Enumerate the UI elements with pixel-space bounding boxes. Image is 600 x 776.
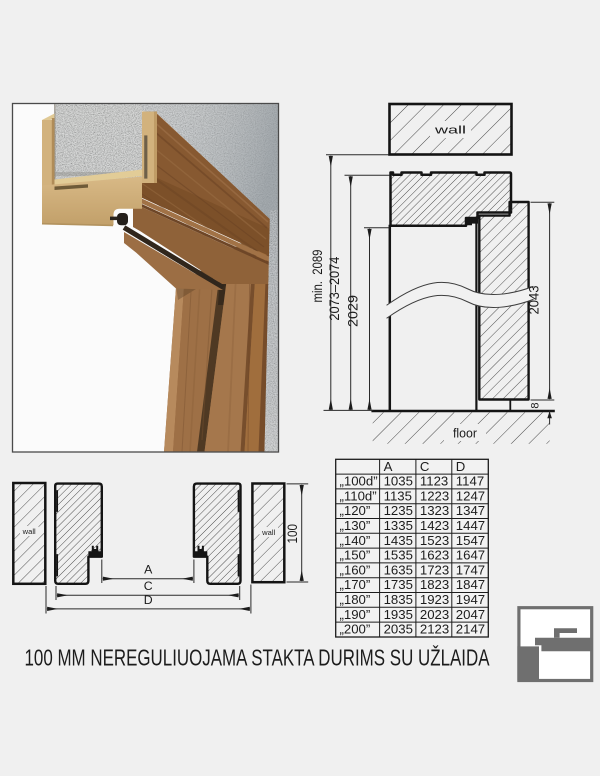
svg-text:2035: 2035 xyxy=(384,622,413,637)
svg-text:„100d”: „100d” xyxy=(340,474,378,489)
svg-text:1323: 1323 xyxy=(420,503,449,518)
svg-text:„140”: „140” xyxy=(340,533,371,548)
svg-text:„120”: „120” xyxy=(340,503,371,518)
svg-text:D: D xyxy=(144,593,153,607)
svg-text:2147: 2147 xyxy=(456,622,485,637)
svg-text:1135: 1135 xyxy=(384,488,412,503)
svg-text:„190”: „190” xyxy=(340,607,371,622)
svg-text:2073–2074: 2073–2074 xyxy=(326,256,342,320)
svg-text:1723: 1723 xyxy=(420,562,449,577)
svg-text:1923: 1923 xyxy=(420,592,449,607)
svg-text:1547: 1547 xyxy=(456,533,485,548)
svg-text:D: D xyxy=(456,459,466,474)
svg-text:„160”: „160” xyxy=(340,562,371,577)
svg-text:1523: 1523 xyxy=(420,533,449,548)
svg-text:1847: 1847 xyxy=(456,577,485,592)
svg-text:2047: 2047 xyxy=(456,607,485,622)
svg-text:100 MM NEREGULIUOJAMA STAKTA D: 100 MM NEREGULIUOJAMA STAKTA DURIMS SU U… xyxy=(25,645,490,671)
svg-text:1123: 1123 xyxy=(420,474,448,489)
svg-text:1035: 1035 xyxy=(384,474,413,489)
svg-text:1635: 1635 xyxy=(384,562,413,577)
svg-text:„110d”: „110d” xyxy=(340,488,377,503)
svg-text:C: C xyxy=(420,459,430,474)
svg-text:2123: 2123 xyxy=(420,622,449,637)
svg-text:2029: 2029 xyxy=(344,295,360,327)
svg-text:„150”: „150” xyxy=(340,548,371,563)
svg-text:1623: 1623 xyxy=(420,548,449,563)
svg-text:1147: 1147 xyxy=(456,474,484,489)
svg-text:wall: wall xyxy=(22,527,36,536)
svg-text:1335: 1335 xyxy=(384,518,413,533)
svg-text:1447: 1447 xyxy=(456,518,485,533)
svg-text:1235: 1235 xyxy=(384,503,413,518)
svg-text:1423: 1423 xyxy=(420,518,449,533)
svg-text:1935: 1935 xyxy=(384,607,413,622)
svg-text:wall: wall xyxy=(261,528,275,537)
svg-text:2023: 2023 xyxy=(420,607,449,622)
svg-text:„170”: „170” xyxy=(340,577,371,592)
svg-text:„180”: „180” xyxy=(340,592,371,607)
svg-text:1823: 1823 xyxy=(420,577,449,592)
svg-text:1347: 1347 xyxy=(456,503,485,518)
svg-text:1947: 1947 xyxy=(456,592,485,607)
svg-text:1435: 1435 xyxy=(384,533,413,548)
svg-text:1647: 1647 xyxy=(456,548,485,563)
svg-text:„200”: „200” xyxy=(340,622,371,637)
svg-text:floor: floor xyxy=(453,427,477,441)
svg-text:wall: wall xyxy=(433,125,466,137)
svg-text:100: 100 xyxy=(285,524,300,544)
svg-text:1223: 1223 xyxy=(420,488,449,503)
svg-text:8: 8 xyxy=(529,402,541,408)
svg-text:A: A xyxy=(384,459,393,474)
svg-text:1835: 1835 xyxy=(384,592,413,607)
svg-text:A: A xyxy=(144,563,153,577)
svg-text:„130”: „130” xyxy=(340,518,371,533)
svg-text:C: C xyxy=(144,579,153,593)
svg-text:min. 2089: min. 2089 xyxy=(309,249,325,302)
svg-text:1535: 1535 xyxy=(384,548,413,563)
svg-text:1735: 1735 xyxy=(384,577,413,592)
svg-text:2043: 2043 xyxy=(525,285,541,314)
svg-text:1247: 1247 xyxy=(456,488,485,503)
svg-text:1747: 1747 xyxy=(456,562,485,577)
